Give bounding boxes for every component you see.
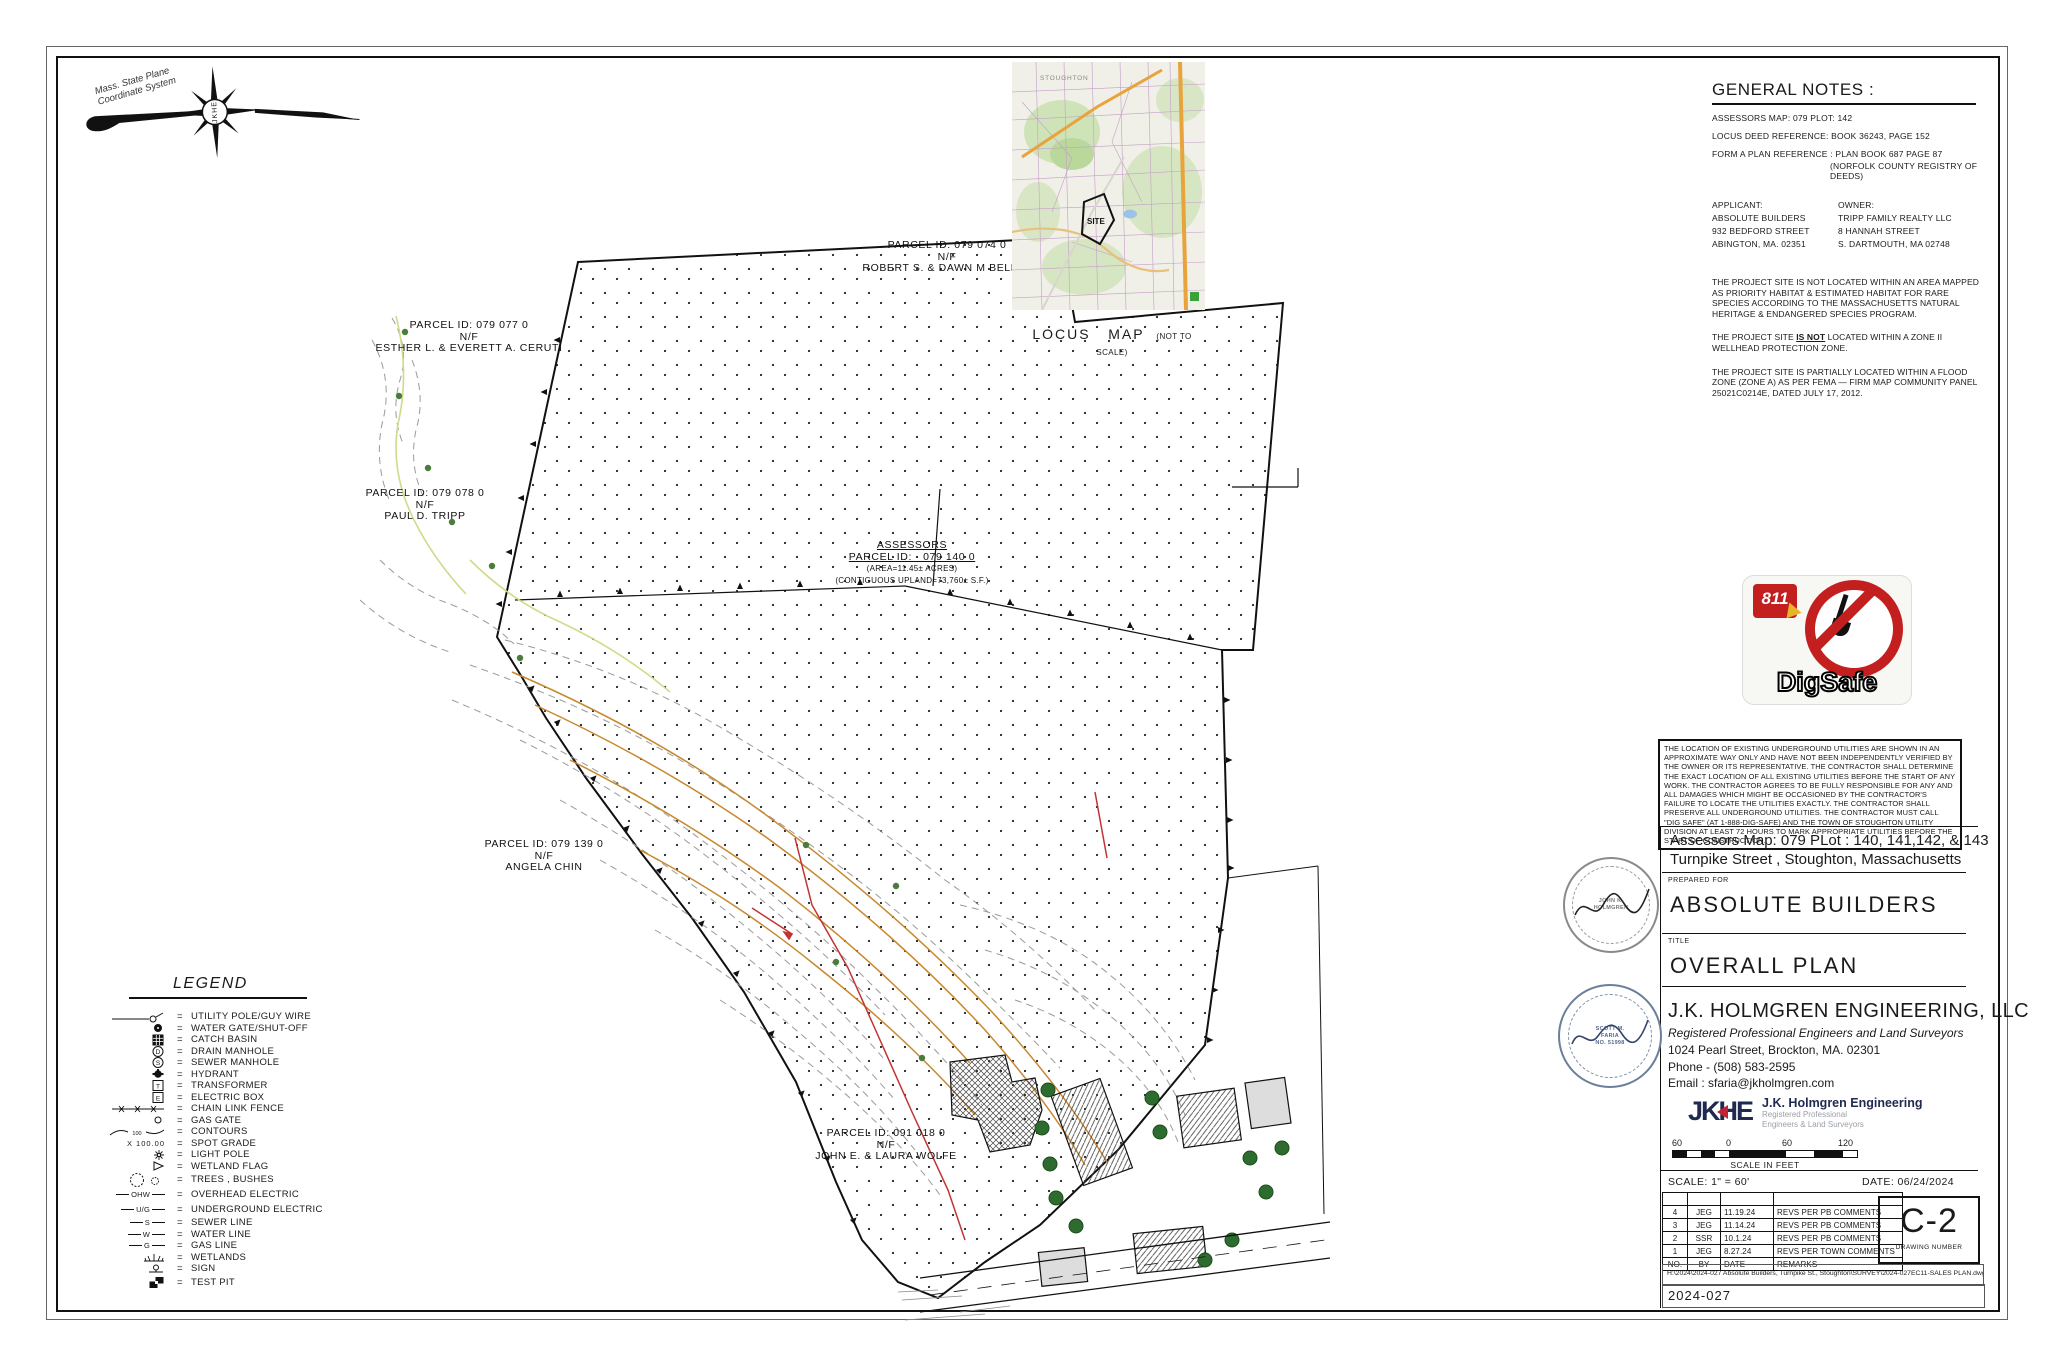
digsafe-logo: 811 DigSafe — [1742, 575, 1912, 705]
revision-row: 4JEG 11.19.24REVS PER PB COMMENTS — [1663, 1206, 1903, 1219]
applicant-block: APPLICANT: ABSOLUTE BUILDERS 932 BEDFORD… — [1712, 199, 1838, 251]
note-habitat: THE PROJECT SITE IS NOT LOCATED WITHIN A… — [1712, 277, 1984, 319]
engineer-signature — [1566, 1012, 1652, 1056]
legend-item-water-gate: = WATER GATE/SHUT-OFF — [95, 1023, 355, 1035]
firm-phone: Phone - (508) 583-2595 — [1668, 1060, 1795, 1074]
legend-item-light-pole: = LIGHT POLE — [95, 1149, 355, 1161]
legend-item-chain-link-fence: = CHAIN LINK FENCE — [95, 1103, 355, 1115]
north-arrow-graphic: Mass. State Plane Coordinate System JKHE — [65, 50, 365, 185]
digsafe-prohibition-circle-icon — [1805, 580, 1903, 678]
scale-bar-segments — [1672, 1150, 1858, 1158]
sheet-title: OVERALL PLAN — [1670, 953, 1858, 979]
gas-gate-icon — [95, 1115, 177, 1125]
firm-address: 1024 Pearl Street, Brockton, MA. 02301 — [1668, 1043, 1880, 1057]
compass-spear — [255, 104, 358, 125]
sewer-line-icon: S — [95, 1218, 177, 1227]
legend-item-spot-grade: X 100.00 = SPOT GRADE — [95, 1138, 355, 1150]
compass-hub-label: JKHE — [211, 101, 219, 123]
legend-item-electric-box: E = ELECTRIC BOX — [95, 1092, 355, 1104]
legend-item-overhead-electric: OHW = OVERHEAD ELECTRIC — [95, 1187, 355, 1202]
legend-item-sewer-line: S = SEWER LINE — [95, 1217, 355, 1229]
digsafe-wordmark: DigSafe — [1743, 667, 1911, 698]
overhead-electric-icon: OHW — [95, 1190, 177, 1199]
general-notes: GENERAL NOTES : ASSESSORS MAP: 079 PLOT:… — [1712, 80, 1984, 398]
project-number: 2024-027 — [1662, 1284, 1985, 1308]
note-wellhead: THE PROJECT SITE IS NOT LOCATED WITHIN A… — [1712, 332, 1984, 353]
firm-subtitle: Registered Professional Engineers and La… — [1668, 1026, 1964, 1040]
surveyor-seal: JOHN K. HOLMGREN — [1563, 857, 1659, 953]
firm-email: Email : sfaria@jkholmgren.com — [1668, 1076, 1834, 1090]
legend-item-wetlands: = WETLANDS — [95, 1252, 355, 1264]
revision-row: 1JEG 8.27.24REVS PER TOWN COMMENTS — [1663, 1245, 1903, 1258]
legend-item-underground-electric: U/G = UNDERGROUND ELECTRIC — [95, 1202, 355, 1217]
file-path: H:\2024\2024-027 Absolute Builders, Turn… — [1662, 1264, 1984, 1286]
engineer-seal: SCOTT M. FARIA NO. 51998 — [1558, 984, 1662, 1088]
legend-item-contours: 100 = CONTOURS — [95, 1126, 355, 1138]
svg-text:100: 100 — [132, 1131, 141, 1137]
locus-map-graphic: STOUGHTON SITE — [1012, 62, 1205, 310]
plan-sheet: PARCEL ID: 079 074 0 N/F ROBERT S. & DAW… — [0, 0, 2048, 1365]
parcel-label-079-077: PARCEL ID: 079 077 0 N/F ESTHER L. & EVE… — [376, 320, 563, 355]
electric-box-icon: E — [95, 1091, 177, 1104]
parcel-label-091-018: PARCEL ID: 091 018 0 N/F JOHN E. & LAURA… — [815, 1128, 957, 1163]
spot-grade-icon: X 100.00 — [95, 1139, 177, 1148]
svg-text:E: E — [156, 1095, 161, 1102]
note-assessors: ASSESSORS MAP: 079 PLOT: 142 — [1712, 113, 1984, 123]
title-block-divider — [1660, 826, 1661, 1308]
parcel-label-079-074: PARCEL ID: 079 074 0 N/F ROBERT S. & DAW… — [862, 240, 1031, 275]
revision-table: 4JEG 11.19.24REVS PER PB COMMENTS 3JEG 1… — [1662, 1192, 1903, 1271]
legend-item-sign: = SIGN — [95, 1263, 355, 1275]
legend-item-test-pit: = TEST PIT — [95, 1275, 355, 1290]
drawing-number-box: C-2 DRAWING NUMBER — [1878, 1196, 1980, 1264]
scale-caption: SCALE IN FEET — [1672, 1160, 1858, 1170]
chain-link-fence-icon — [95, 1104, 177, 1114]
light-pole-icon — [95, 1149, 177, 1161]
drawing-number: C-2 — [1880, 1202, 1978, 1241]
locus-town-label: STOUGHTON — [1040, 75, 1089, 82]
title-assessors-line: Assessors Map: 079 PLot : 140, 141,142, … — [1670, 832, 1989, 849]
legend-item-wetland-flag: = WETLAND FLAG — [95, 1161, 355, 1173]
jkhe-logo-arrow-icon — [1717, 1105, 1728, 1119]
drawing-number-label: DRAWING NUMBER — [1880, 1244, 1978, 1251]
wetland-flag-icon — [95, 1160, 177, 1172]
owner-block: OWNER: TRIPP FAMILY REALTY LLC 8 HANNAH … — [1838, 199, 1964, 251]
parcel-label-079-078: PARCEL ID: 079 078 0 N/F PAUL D. TRIPP — [366, 488, 485, 523]
graphic-scale-bar: 60 0 60 120 SCALE IN FEET — [1672, 1138, 1858, 1170]
locus-map-caption: LOCUS MAP (NOT TO SCALE) — [1022, 326, 1202, 358]
underground-electric-icon: U/G — [95, 1205, 177, 1214]
svg-text:D: D — [156, 1049, 161, 1056]
contours-icon: 100 — [95, 1125, 177, 1139]
trees-bushes-icon — [95, 1172, 177, 1188]
revision-row: 2SSR 10.1.24REVS PER PB COMMENTS — [1663, 1232, 1903, 1245]
sign-icon — [95, 1263, 177, 1275]
locus-green-marker — [1190, 292, 1199, 301]
general-notes-heading: GENERAL NOTES : — [1712, 80, 1976, 105]
water-gate-icon — [95, 1022, 177, 1034]
svg-text:S: S — [156, 1060, 161, 1067]
prepared-for-label: PREPARED FOR — [1668, 877, 1729, 884]
utility-pole-icon — [95, 1011, 177, 1023]
gas-line-icon: G — [95, 1241, 177, 1250]
jkhe-logo-mark: JKHE — [1688, 1096, 1752, 1126]
rule-1 — [1662, 872, 1966, 873]
parcel-label-main-079-140: ASSESSORS PARCEL ID: · 079 140 0 (AREA=1… — [835, 540, 988, 586]
legend-title-rule — [129, 997, 307, 999]
surveyor-signature — [1571, 885, 1651, 929]
scale-note: SCALE: 1" = 60' — [1668, 1176, 1749, 1188]
svg-text:T: T — [156, 1084, 160, 1091]
note-form-a-2: (NORFOLK COUNTY REGISTRY OF DEEDS) — [1830, 161, 1984, 181]
legend-item-trees-bushes: = TREES , BUSHES — [95, 1172, 355, 1187]
rule-4 — [1660, 1170, 1978, 1171]
revision-row-empty — [1663, 1193, 1903, 1206]
note-form-a: FORM A PLAN REFERENCE : PLAN BOOK 687 PA… — [1712, 149, 1984, 159]
applicant-owner-block: APPLICANT: ABSOLUTE BUILDERS 932 BEDFORD… — [1712, 199, 1984, 251]
parcel-label-079-139: PARCEL ID: 079 139 0 N/F ANGELA CHIN — [485, 839, 604, 874]
water-line-icon: W — [95, 1230, 177, 1239]
locus-site-label: SITE — [1087, 217, 1105, 226]
title-address-line: Turnpike Street , Stoughton, Massachuset… — [1670, 851, 1961, 868]
jkhe-logo-text: J.K. Holmgren Engineering Registered Pro… — [1762, 1096, 1922, 1129]
locus-pond — [1123, 210, 1137, 219]
revision-row: 3JEG 11.14.24REVS PER PB COMMENTS — [1663, 1219, 1903, 1232]
title-label: TITLE — [1668, 938, 1690, 945]
legend-item-sewer-manhole: S = SEWER MANHOLE — [95, 1057, 355, 1069]
svg-text:Mass. State Plane Coor: Mass. State Plane Coordinate System — [94, 64, 178, 107]
note-flood: THE PROJECT SITE IS PARTIALLY LOCATED WI… — [1712, 367, 1984, 399]
legend-item-utility-pole: = UTILITY POLE/GUY WIRE — [95, 1011, 355, 1023]
note-deed: LOCUS DEED REFERENCE: BOOK 36243, PAGE 1… — [1712, 131, 1984, 141]
legend-title: LEGEND — [173, 975, 355, 993]
test-pit-icon — [95, 1276, 177, 1289]
legend-item-gas-line: G = GAS LINE — [95, 1240, 355, 1252]
firm-name: J.K. HOLMGREN ENGINEERING, LLC — [1668, 1000, 2029, 1023]
rule-3 — [1662, 986, 1966, 987]
legend-item-water-line: W = WATER LINE — [95, 1229, 355, 1241]
wetlands-icon — [95, 1252, 177, 1263]
date-note: DATE: 06/24/2024 — [1862, 1176, 1954, 1188]
rule-2 — [1662, 933, 1966, 934]
prepared-for-name: ABSOLUTE BUILDERS — [1670, 892, 1938, 918]
jkhe-logo: JKHE J.K. Holmgren Engineering Registere… — [1688, 1096, 1922, 1129]
legend: LEGEND = UTILITY POLE/GUY WIRE = WATER G… — [95, 975, 355, 1290]
scale-tick-labels: 60 0 60 120 — [1672, 1138, 1858, 1148]
